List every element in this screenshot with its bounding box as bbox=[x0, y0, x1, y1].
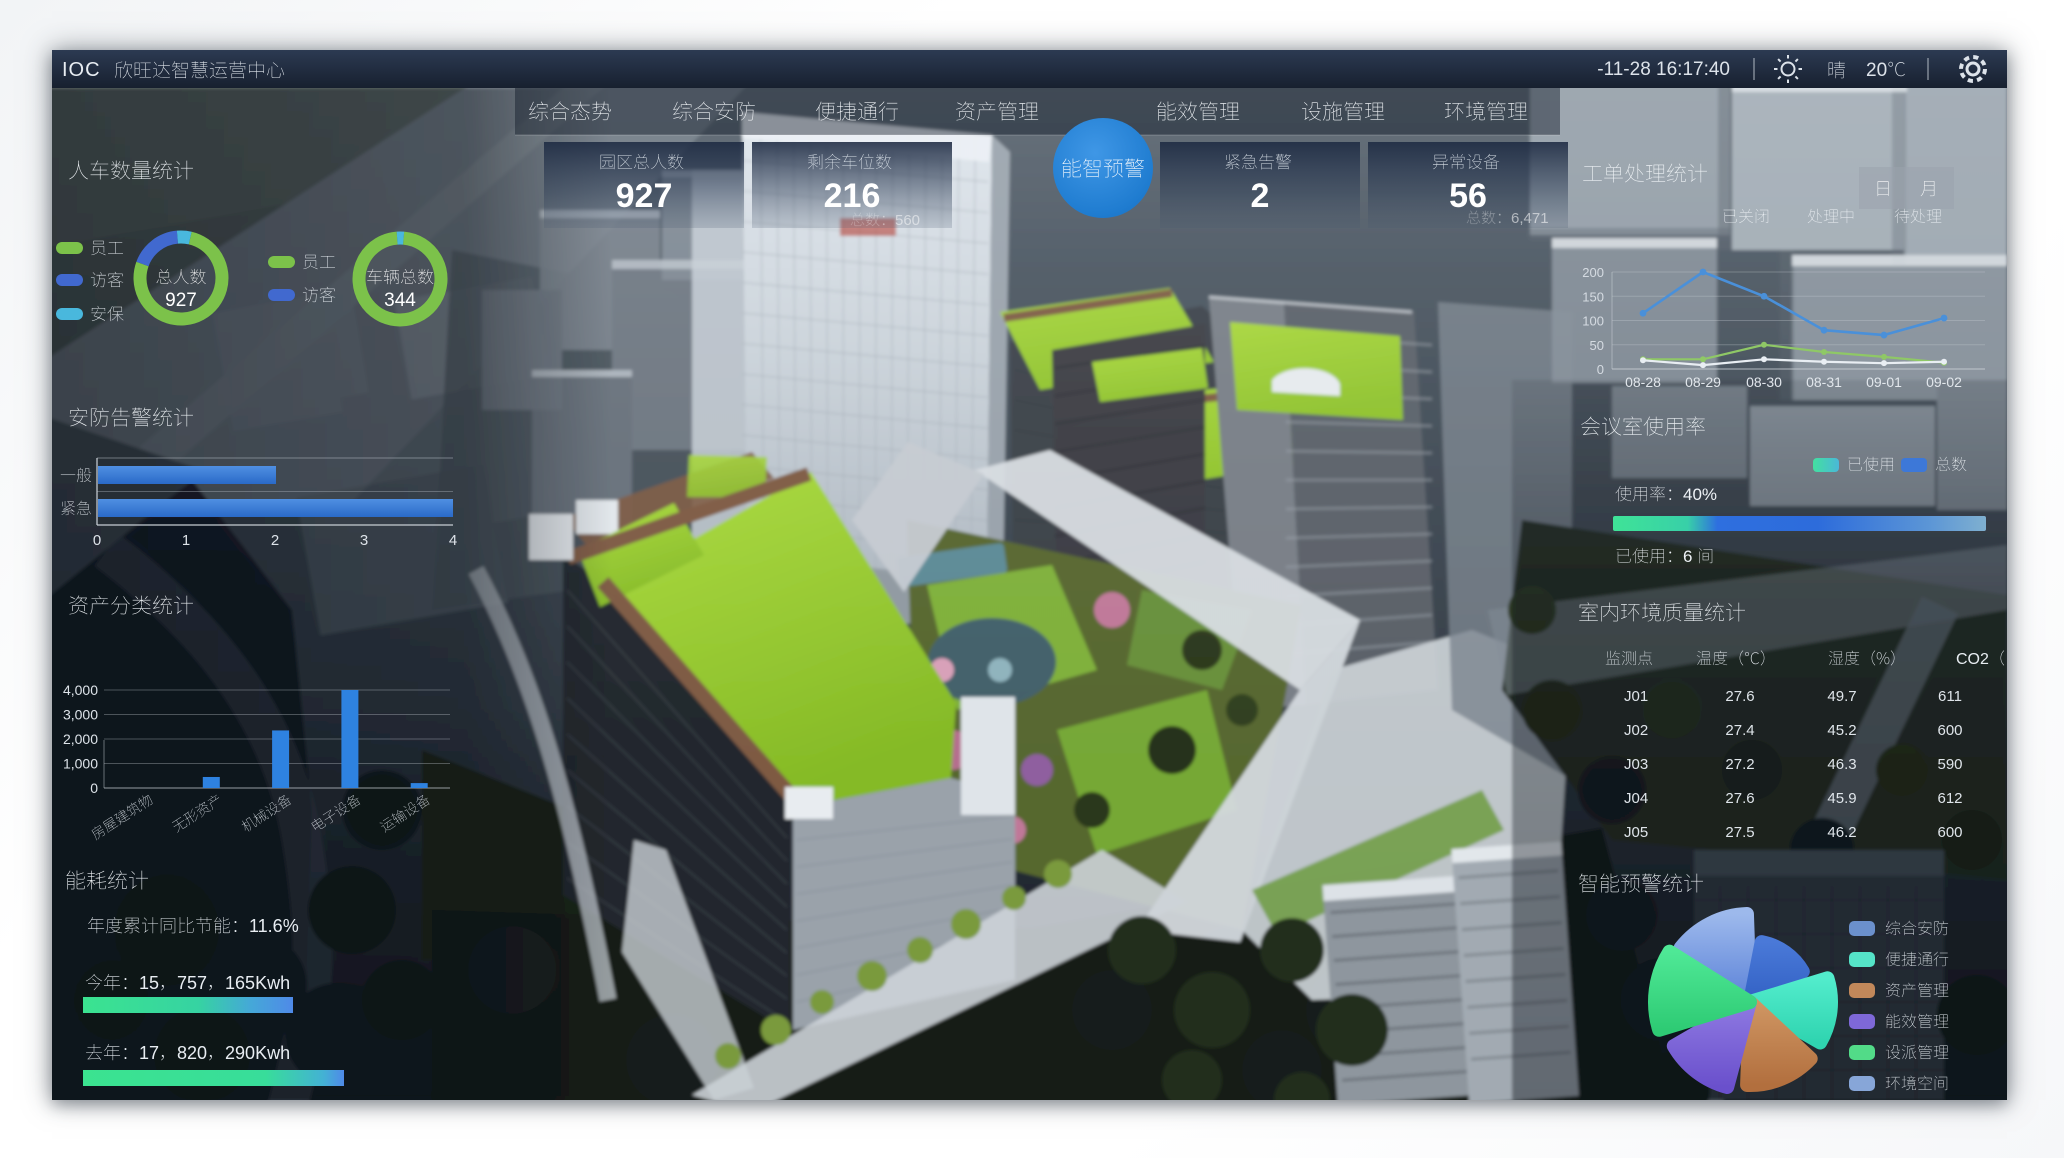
svg-text:27.2: 27.2 bbox=[1725, 756, 1754, 773]
svg-text:0: 0 bbox=[90, 780, 98, 796]
svg-text:612: 612 bbox=[1937, 790, 1962, 807]
svg-text:CO2: CO2 bbox=[1956, 651, 1989, 668]
svg-text:40%: 40% bbox=[1683, 485, 1717, 504]
svg-text:611: 611 bbox=[1938, 688, 1962, 705]
svg-text:165Kwh: 165Kwh bbox=[225, 973, 290, 993]
svg-text:757: 757 bbox=[177, 973, 207, 993]
svg-text:J01: J01 bbox=[1624, 688, 1648, 705]
svg-text:27.6: 27.6 bbox=[1725, 688, 1754, 705]
svg-text:590: 590 bbox=[1937, 756, 1962, 773]
svg-text:J03: J03 bbox=[1624, 756, 1648, 773]
svg-text:08-29: 08-29 bbox=[1685, 374, 1721, 390]
svg-text:15: 15 bbox=[139, 973, 159, 993]
svg-text:344: 344 bbox=[384, 290, 416, 311]
svg-text:560: 560 bbox=[895, 212, 920, 229]
svg-text:11.6%: 11.6% bbox=[249, 916, 299, 936]
svg-text:0: 0 bbox=[1597, 362, 1604, 377]
svg-text:45.2: 45.2 bbox=[1827, 722, 1856, 739]
svg-text:08-28: 08-28 bbox=[1625, 374, 1661, 390]
svg-text:6,471: 6,471 bbox=[1511, 210, 1549, 227]
svg-text:J04: J04 bbox=[1624, 790, 1648, 807]
svg-text:200: 200 bbox=[1582, 265, 1604, 280]
svg-text:4: 4 bbox=[449, 532, 457, 549]
svg-text:17: 17 bbox=[139, 1043, 159, 1063]
svg-text:46.2: 46.2 bbox=[1827, 824, 1856, 841]
svg-text:600: 600 bbox=[1937, 722, 1962, 739]
svg-text:3: 3 bbox=[360, 532, 368, 549]
svg-text:-11-28 16:17:40: -11-28 16:17:40 bbox=[1597, 59, 1730, 80]
svg-text:1: 1 bbox=[182, 532, 190, 549]
svg-text:09-02: 09-02 bbox=[1926, 374, 1962, 390]
svg-text:08-30: 08-30 bbox=[1746, 374, 1782, 390]
svg-text:20: 20 bbox=[1866, 60, 1887, 81]
svg-text:46.3: 46.3 bbox=[1827, 756, 1856, 773]
svg-text:2,000: 2,000 bbox=[63, 731, 98, 747]
svg-text:927: 927 bbox=[165, 290, 197, 311]
svg-text:08-31: 08-31 bbox=[1806, 374, 1842, 390]
svg-text:4,000: 4,000 bbox=[63, 682, 98, 698]
svg-text:27.4: 27.4 bbox=[1725, 722, 1754, 739]
svg-text:0: 0 bbox=[93, 532, 101, 549]
svg-text:2: 2 bbox=[271, 532, 279, 549]
svg-text:100: 100 bbox=[1582, 314, 1604, 329]
svg-text:3,000: 3,000 bbox=[63, 707, 98, 723]
svg-text:09-01: 09-01 bbox=[1866, 374, 1902, 390]
svg-text:927: 927 bbox=[616, 177, 673, 215]
svg-text:27.5: 27.5 bbox=[1725, 824, 1754, 841]
svg-text:2: 2 bbox=[1251, 177, 1270, 215]
svg-text:600: 600 bbox=[1937, 824, 1962, 841]
svg-text:IOC: IOC bbox=[62, 59, 101, 81]
svg-text:6: 6 bbox=[1683, 547, 1692, 566]
svg-text:J02: J02 bbox=[1624, 722, 1648, 739]
svg-text:45.9: 45.9 bbox=[1827, 790, 1856, 807]
svg-text:150: 150 bbox=[1582, 289, 1604, 304]
svg-text:49.7: 49.7 bbox=[1827, 688, 1856, 705]
svg-text:216: 216 bbox=[824, 177, 881, 215]
svg-text:27.6: 27.6 bbox=[1725, 790, 1754, 807]
svg-text:820: 820 bbox=[177, 1043, 207, 1063]
svg-text:290Kwh: 290Kwh bbox=[225, 1043, 290, 1063]
svg-text:J05: J05 bbox=[1624, 824, 1648, 841]
svg-text:50: 50 bbox=[1590, 338, 1604, 353]
svg-text:56: 56 bbox=[1449, 177, 1487, 215]
svg-text:1,000: 1,000 bbox=[63, 756, 98, 772]
